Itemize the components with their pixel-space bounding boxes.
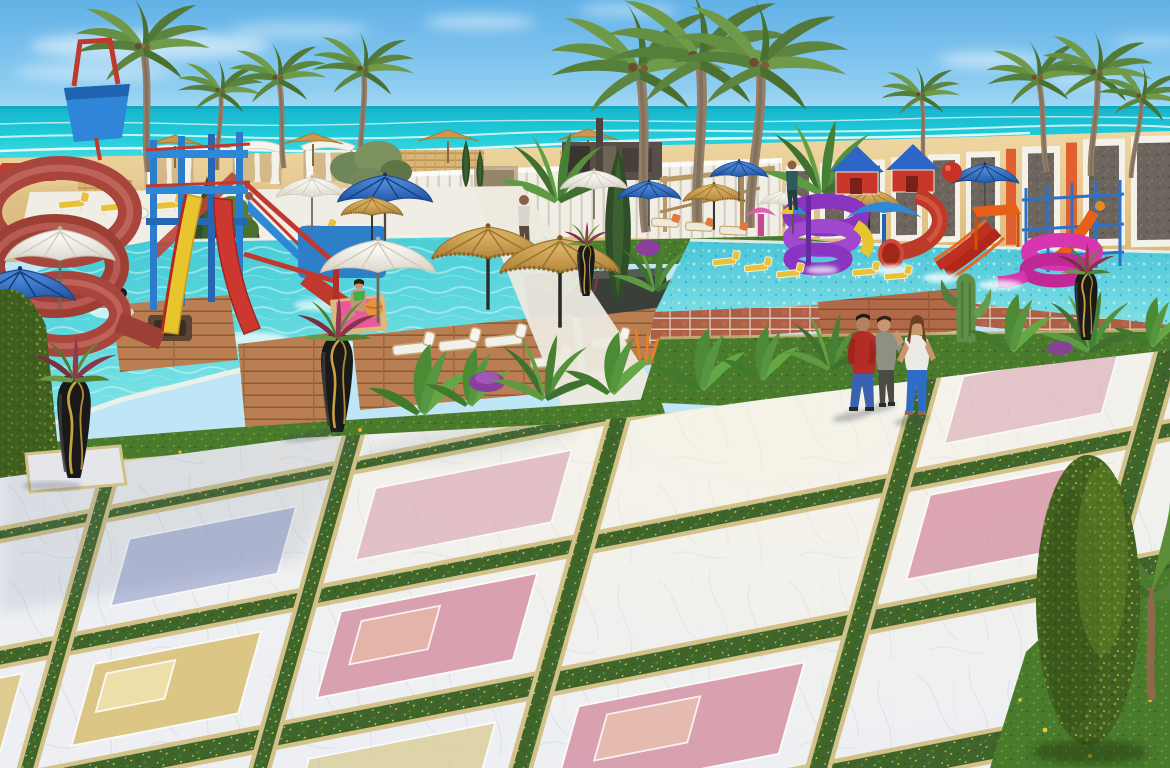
horizon-line xyxy=(0,106,1170,109)
resort-scene-canvas: Beach resort aqua park — 3D architectura… xyxy=(0,0,1170,768)
wall-orange-accent xyxy=(1006,149,1016,245)
purple-flower-bush xyxy=(1047,341,1073,355)
purple-flower-bush xyxy=(636,240,660,256)
resort-render: Beach resort aqua park — 3D architectura… xyxy=(0,0,1170,768)
